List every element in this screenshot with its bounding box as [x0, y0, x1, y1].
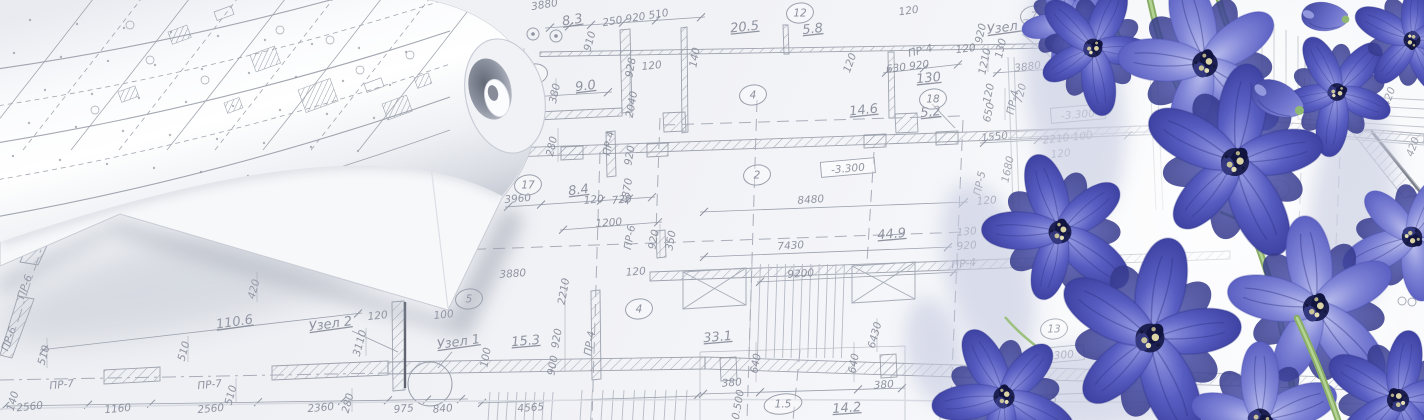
dimension-label: 1160 [104, 402, 132, 416]
dimension-label: 130 [916, 70, 942, 88]
wall-segment [783, 25, 789, 54]
dimension-label: 928 [623, 56, 638, 78]
dimension-label: 120 [898, 4, 920, 19]
dimension-label: 510 [36, 344, 53, 367]
dimension-label: 7430 [777, 239, 805, 253]
dimension-label: 120 [955, 42, 977, 56]
dimension-label: 2560 [197, 402, 225, 416]
dimension-label: 15.3 [511, 333, 541, 350]
dimension-label: 9200 [787, 267, 815, 281]
dimension-label: ПР-7 [197, 378, 223, 393]
dimension-label: 920 [549, 327, 564, 349]
axis-line [656, 118, 660, 232]
dimension-label: 120 [641, 59, 663, 73]
axis-bubble-number: 18 [926, 94, 940, 106]
dimension-label: 3110 [351, 328, 370, 357]
stair-tread [783, 264, 786, 358]
dimension-label: 33.1 [703, 329, 733, 346]
dimension-label: 840 [432, 402, 453, 416]
dimension-label: 510 [223, 384, 240, 407]
dimension-label: 5.8 [802, 21, 824, 38]
axis-bubble-number: 4 [636, 304, 643, 316]
axis-bubble-number: 4 [750, 90, 757, 102]
axis-bubble-number: 1.5 [775, 399, 792, 411]
stair-tread [497, 392, 499, 420]
stair-tread [675, 390, 677, 420]
stair-tread [643, 390, 645, 420]
dimension-label: 120 [625, 265, 646, 278]
stair-tread [488, 392, 490, 420]
stair-tread [633, 390, 635, 420]
dimension-label: 720 [611, 193, 632, 207]
dimension-label: ПР-4 [907, 42, 934, 60]
wall-segment [880, 354, 897, 378]
dimension-label: 14.2 [832, 400, 862, 417]
dimension-label: 4565 [517, 401, 545, 415]
stair-tread [685, 390, 687, 420]
wall-segment [272, 361, 388, 380]
dimension-label: 130 [993, 37, 1009, 59]
dimension-label: 380 [547, 82, 563, 104]
dimension-label: ПР-6 [622, 224, 638, 251]
banner-scene: 38808.3250 920 51020.55.8120Узел 3ПР-463… [0, 0, 1424, 420]
dimension-label: 2210 [556, 277, 573, 306]
stair-tread [654, 390, 656, 420]
stair-tread [622, 390, 624, 420]
wall-segment [864, 134, 886, 148]
stair-tread [825, 264, 828, 358]
axis-bubble-number: 2 [754, 170, 761, 182]
dimension-label: 120 [583, 193, 604, 207]
stair-tread [506, 392, 508, 420]
wall-segment [936, 131, 958, 145]
stair-tread [664, 390, 666, 420]
wall-segment [663, 112, 686, 132]
stair-tread [774, 264, 777, 358]
stair-tread [551, 392, 553, 420]
dimension-label: 280 [340, 392, 357, 415]
dimension-label: 1200 [595, 216, 623, 230]
dimension-label: 20.5 [729, 19, 759, 37]
dimension-label: 14.6 [848, 102, 878, 120]
stair-tread [757, 264, 760, 358]
dimension-line [700, 247, 952, 257]
stair-tread [612, 390, 614, 420]
axis-bubble-number: 17 [521, 180, 535, 192]
wall-segment [895, 113, 918, 133]
dimension-label: 8480 [797, 193, 825, 207]
stair-tread [601, 390, 603, 420]
dimension-label: 140 [687, 46, 702, 68]
dimension-label: 510 [176, 340, 193, 363]
survey-mark [554, 34, 558, 38]
axis-bubble-number: 12 [793, 8, 807, 20]
dimension-label: 3880 [499, 267, 527, 281]
dimension-label: 1210 [976, 47, 993, 76]
wall-segment [104, 367, 160, 384]
dimension-label: 910 [582, 30, 599, 53]
dimension-label: 380 [721, 376, 742, 389]
blueprint-flower-banner: 38808.3250 920 51020.55.8120Узел 3ПР-463… [0, 0, 1424, 420]
dimension-label: 9.0 [574, 78, 596, 95]
wall-segment [561, 146, 583, 160]
dimension-label: 250 920 510 [602, 7, 670, 29]
dimension-label: 3880 [530, 0, 559, 13]
dimension-label: Узел 1 [436, 332, 481, 353]
dimension-label: 8.3 [561, 12, 584, 30]
dimension-label: 44.9 [877, 226, 907, 243]
dimension-label: 380 [873, 378, 894, 391]
dimension-line [700, 202, 968, 212]
wall-segment [647, 143, 668, 157]
dimension-label: 920 [622, 144, 637, 166]
survey-mark [531, 32, 535, 36]
dimension-label: ПР-7 [49, 378, 75, 393]
stair-tread [580, 390, 582, 420]
dimension-label: 2560 [16, 400, 44, 415]
dimension-label: 350 [663, 229, 678, 251]
dimension-label: 120 [841, 51, 859, 74]
dimension-label: 900 [545, 354, 560, 376]
stair-tread [766, 264, 769, 358]
dimension-label: 920 [973, 22, 989, 44]
dimension-label: 6430 [866, 320, 885, 349]
dimension-label: 2360 [307, 401, 335, 415]
stair-tread [816, 264, 819, 358]
dimension-label: 975 [393, 402, 414, 416]
dimension-label: Узел 2 [308, 314, 353, 335]
rolled-blueprint [0, 0, 557, 375]
